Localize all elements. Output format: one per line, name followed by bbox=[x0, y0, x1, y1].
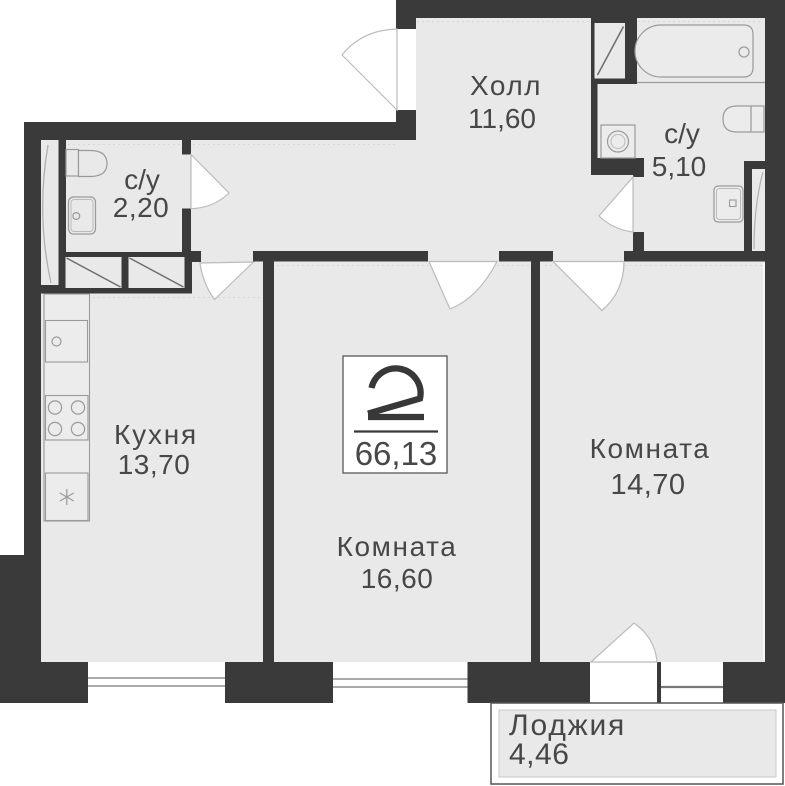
svg-text:66,13: 66,13 bbox=[355, 435, 438, 472]
svg-text:5,10: 5,10 bbox=[652, 151, 707, 182]
svg-text:Комната: Комната bbox=[590, 433, 711, 464]
svg-text:с/у: с/у bbox=[664, 118, 700, 149]
svg-text:2,20: 2,20 bbox=[113, 192, 170, 223]
svg-text:Кухня: Кухня bbox=[114, 419, 198, 450]
svg-text:16,60: 16,60 bbox=[361, 563, 434, 594]
svg-text:Холл: Холл bbox=[470, 70, 542, 101]
svg-text:4,46: 4,46 bbox=[509, 738, 569, 771]
svg-text:13,70: 13,70 bbox=[118, 449, 191, 480]
svg-text:Комната: Комната bbox=[337, 531, 458, 562]
svg-text:14,70: 14,70 bbox=[610, 469, 685, 501]
svg-text:11,60: 11,60 bbox=[468, 103, 536, 134]
svg-text:с/у: с/у bbox=[124, 164, 160, 195]
